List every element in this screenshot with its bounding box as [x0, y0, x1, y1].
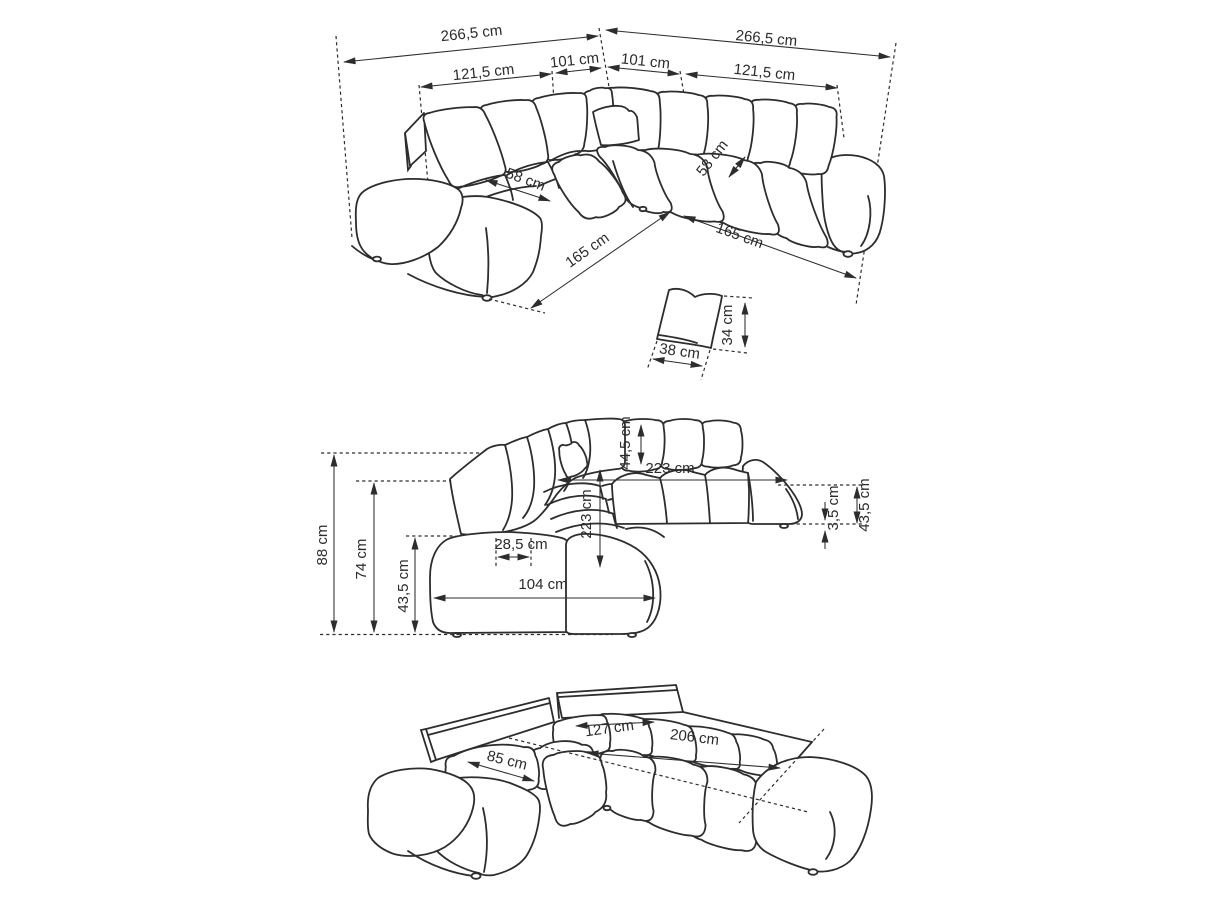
- svg-text:28,5 cm: 28,5 cm: [494, 536, 547, 553]
- svg-text:88 cm: 88 cm: [314, 525, 331, 566]
- svg-text:223 cm: 223 cm: [578, 489, 595, 538]
- svg-text:74 cm: 74 cm: [353, 539, 370, 580]
- svg-text:44,5 cm: 44,5 cm: [617, 416, 634, 469]
- svg-text:43,5 cm: 43,5 cm: [395, 559, 412, 612]
- svg-text:43,5 cm: 43,5 cm: [856, 478, 873, 531]
- svg-text:34 cm: 34 cm: [719, 305, 736, 346]
- svg-text:223 cm: 223 cm: [645, 460, 694, 477]
- svg-text:104 cm: 104 cm: [518, 576, 567, 593]
- svg-text:3,5 cm: 3,5 cm: [825, 485, 842, 530]
